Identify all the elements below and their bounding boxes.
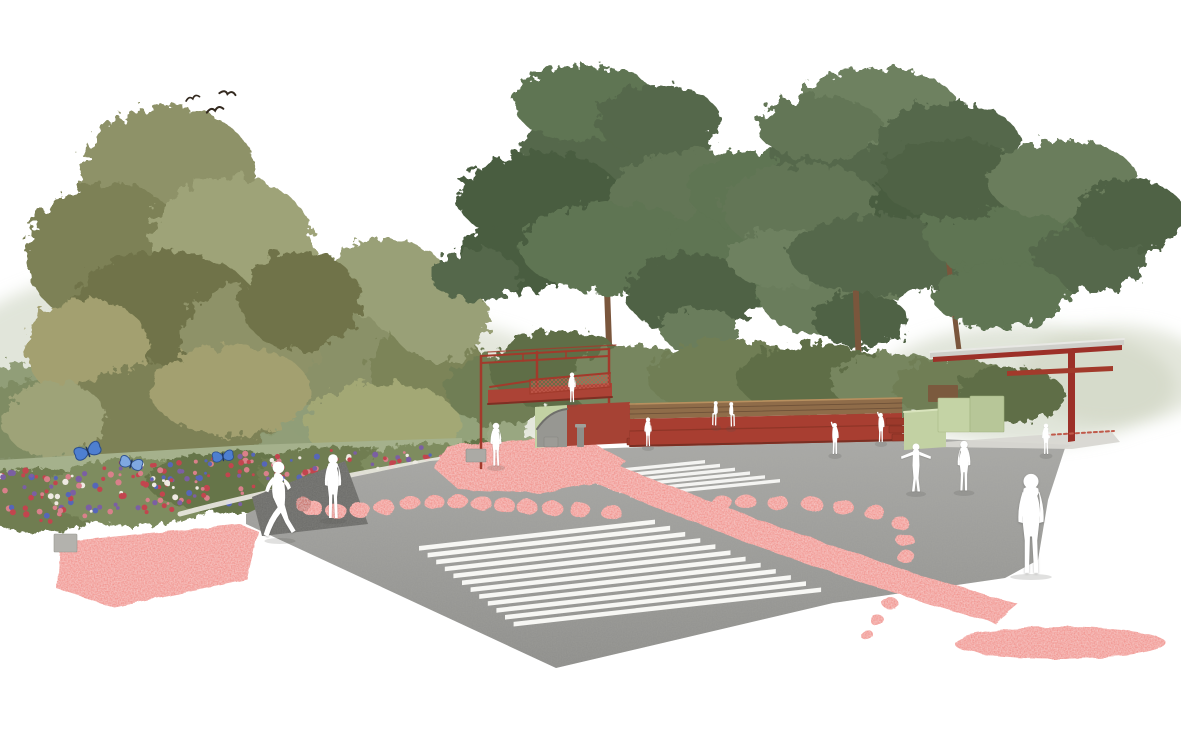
game-circle-marking xyxy=(295,497,311,511)
planter-pot-left-edge xyxy=(54,534,77,552)
pine-4-canopy xyxy=(880,138,1181,328)
coral-entry-patch xyxy=(57,524,258,607)
planter-pot-2 xyxy=(544,437,558,447)
planter-pot-1 xyxy=(466,449,486,462)
drinking-fountain xyxy=(577,426,584,447)
scene-root xyxy=(0,65,1181,668)
swallow-birds xyxy=(185,89,236,113)
drinking-fountain-cap xyxy=(575,424,586,428)
canopy-post xyxy=(1068,348,1075,442)
landscape-architecture-rendering xyxy=(0,0,1181,752)
canopy-green-box-2 xyxy=(970,396,1004,432)
rendering-canvas xyxy=(0,0,1181,752)
canopy-green-box-1 xyxy=(938,398,970,432)
coral-ellipse xyxy=(954,627,1166,659)
